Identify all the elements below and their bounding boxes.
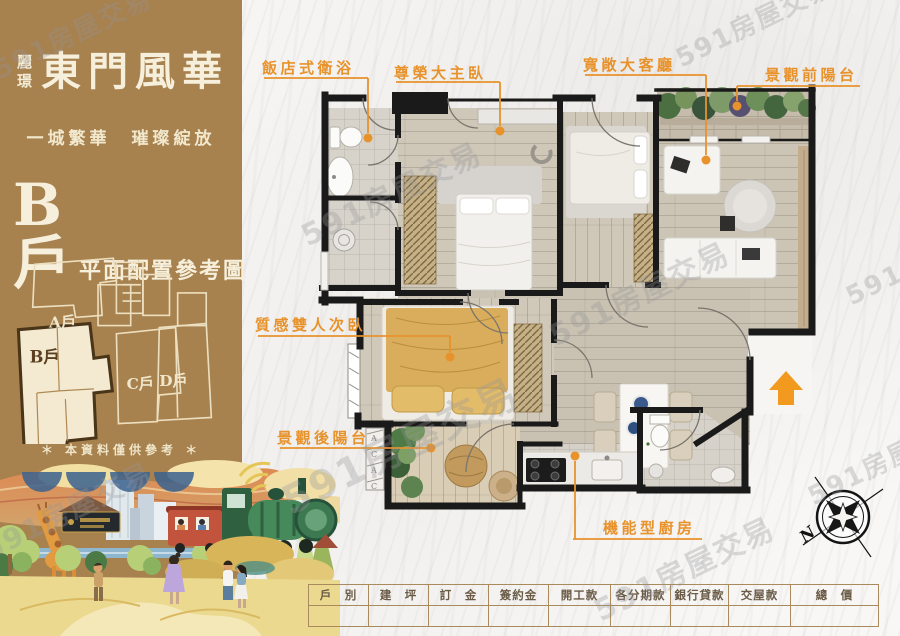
label-hotel-bath: 飯店式衛浴 xyxy=(262,57,355,78)
table-cell-empty xyxy=(671,606,729,627)
col-deposit: 訂 金 xyxy=(429,585,489,606)
table-cell-empty xyxy=(489,606,549,627)
col-installment: 各分期款 xyxy=(611,585,671,606)
table-cell-empty xyxy=(369,606,429,627)
col-signing: 簽約金 xyxy=(489,585,549,606)
flyer-canvas: 麗璟 東門風華 一城繁華 璀璨綻放 B戶 平面配置參考圖 xyxy=(0,0,900,636)
ac-mark: C xyxy=(371,450,377,459)
label-master-bedroom: 尊榮大主臥 xyxy=(394,62,487,83)
label-front-balcony: 景觀前陽台 xyxy=(765,64,858,85)
price-table-header-row: 戶 別 建 坪 訂 金 簽約金 開工款 各分期款 銀行貸款 交屋款 總 價 xyxy=(309,585,879,606)
col-bank-loan: 銀行貸款 xyxy=(671,585,729,606)
col-unit: 戶 別 xyxy=(309,585,369,606)
col-handover: 交屋款 xyxy=(729,585,791,606)
compass-north-label: N xyxy=(795,521,820,546)
price-table: 戶 別 建 坪 訂 金 簽約金 開工款 各分期款 銀行貸款 交屋款 總 價 xyxy=(308,584,879,627)
table-cell-empty xyxy=(549,606,611,627)
col-area: 建 坪 xyxy=(369,585,429,606)
ac-mark: A xyxy=(370,434,377,443)
compass-icon: N xyxy=(795,477,883,557)
label-second-bedroom: 質感雙人次臥 xyxy=(255,314,366,335)
table-cell-empty xyxy=(729,606,791,627)
col-total: 總 價 xyxy=(791,585,879,606)
ac-mark: C xyxy=(371,482,377,491)
city-illustration xyxy=(0,450,340,636)
table-cell-empty xyxy=(429,606,489,627)
table-cell-empty xyxy=(791,606,879,627)
col-start: 開工款 xyxy=(549,585,611,606)
label-kitchen: 機能型廚房 xyxy=(603,517,696,538)
label-rear-balcony: 景觀後陽台 xyxy=(277,427,370,448)
price-table-empty-row xyxy=(309,606,879,627)
table-cell-empty xyxy=(309,606,369,627)
label-living-room: 寬敞大客廳 xyxy=(583,54,676,75)
table-cell-empty xyxy=(611,606,671,627)
ac-mark: A xyxy=(370,466,377,475)
